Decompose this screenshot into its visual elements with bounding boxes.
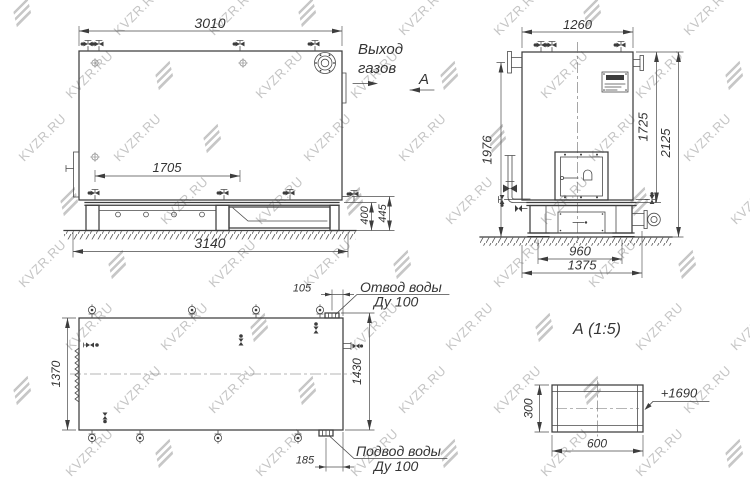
nameplate: [602, 72, 628, 92]
dim-plan-width-right: 1430: [350, 358, 364, 385]
dim-height-to-pipe: 1976: [480, 135, 495, 165]
dim-base-height-total: 445: [377, 203, 389, 222]
dim-base-length: 3140: [194, 235, 225, 251]
gas-flow-arrow-icon: [368, 81, 378, 86]
drawing-canvas: 3010 1705 3140 400 445 Выход газов А: [0, 0, 750, 500]
gas-outlet-label-line2: газов: [358, 60, 396, 77]
side-view: 3010 1705 3140 400 445 Выход газов А: [64, 15, 434, 258]
dim-duct-height: 300: [522, 398, 536, 418]
plan-view: 1370 1430 105 185 Отвод воды Ду 100 Подв…: [49, 279, 449, 474]
dim-duct-width: 600: [587, 437, 607, 451]
water-outlet-flange: [325, 313, 339, 318]
dim-base-height: 400: [359, 205, 371, 224]
front-view: 1260 1976 1725 2125 960 1375: [480, 17, 684, 278]
water-outlet-label-line2: Ду 100: [372, 294, 418, 310]
gas-outlet-label-line1: Выход: [358, 41, 403, 58]
dim-total-height: 2125: [658, 128, 673, 159]
ash-door: [558, 212, 605, 233]
dim-base-inner-width: 960: [569, 244, 591, 259]
water-inlet-label-line2: Ду 100: [372, 458, 418, 474]
dim-body-height: 1725: [636, 112, 651, 142]
elevation-mark-label: +1690: [661, 386, 698, 401]
dim-grate-length: 1705: [153, 160, 183, 175]
dim-inlet-offset: 185: [296, 455, 315, 467]
dim-front-width: 1260: [563, 17, 593, 32]
dim-plan-width-left: 1370: [49, 360, 63, 387]
dim-outlet-offset: 105: [293, 283, 312, 295]
dim-base-width: 1375: [568, 258, 598, 273]
gas-outlet-flange: [315, 53, 336, 74]
dim-top-width: 3010: [194, 15, 225, 31]
water-inlet-label-line1: Подвод воды: [356, 443, 442, 459]
detail-a-view: А (1:5) 300 600 +1690: [522, 321, 710, 457]
section-letter: А: [418, 71, 429, 88]
furnace-door: [555, 152, 608, 200]
water-inlet-flange: [319, 430, 333, 436]
detail-a-title: А (1:5): [572, 321, 621, 338]
drawing-sheet: KVZR.RUKVZR.RUKVZR.RUKVZR.RUKVZR.RUKVZR.…: [0, 0, 750, 500]
section-a-arrow-icon: [410, 87, 420, 92]
